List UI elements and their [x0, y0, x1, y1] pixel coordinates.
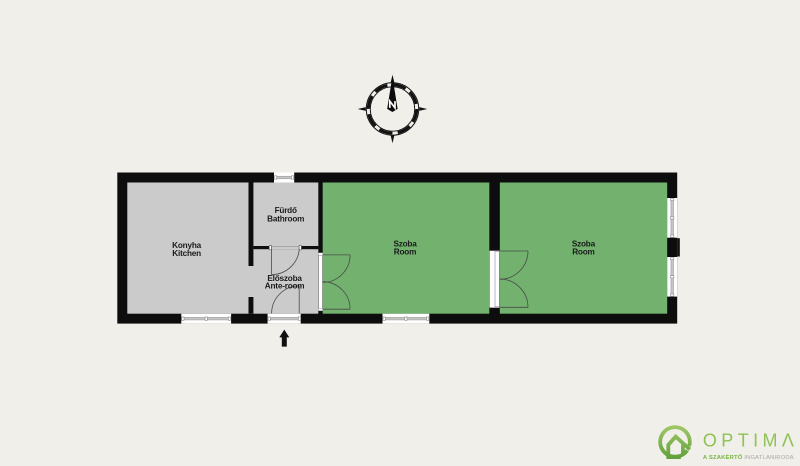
svg-text:Ante-room: Ante-room	[265, 282, 305, 291]
svg-text:Kitchen: Kitchen	[172, 249, 201, 258]
svg-text:OPTIMΛ: OPTIMΛ	[703, 431, 798, 451]
svg-text:Bathroom: Bathroom	[267, 214, 304, 223]
svg-text:Room: Room	[394, 248, 416, 257]
svg-text:A SZAKÉRTŐ INGATLANIRODA: A SZAKÉRTŐ INGATLANIRODA	[703, 453, 794, 461]
svg-text:Room: Room	[572, 248, 594, 257]
